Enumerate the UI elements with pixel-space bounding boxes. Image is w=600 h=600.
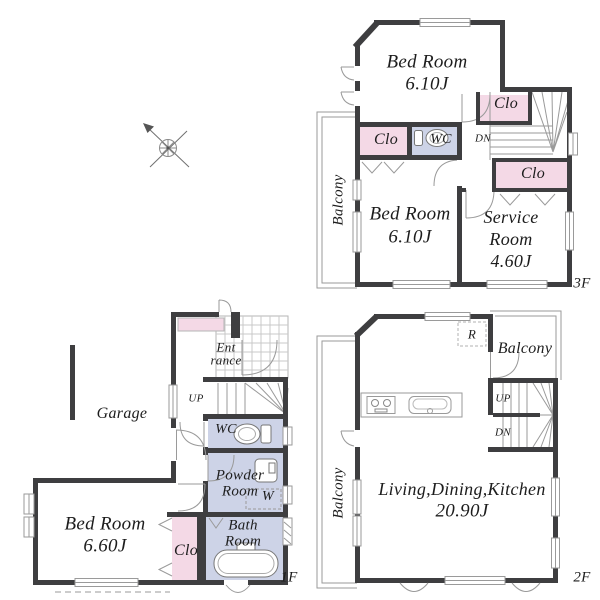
bath-room-line2: Room [225,535,261,550]
balcony-right-label-2f: Balcony [498,341,553,357]
ldk-size-2f: 20.90J [436,502,489,521]
service-room-line2: Room [489,230,532,248]
up-label-2f: UP [495,394,510,405]
balcony-left-label-2f: Balcony [332,467,347,518]
floor-label-2f: 2F [573,571,590,586]
down-label-2f: DN [495,428,511,439]
plan-drawing [0,0,600,600]
closet-upper-label-3f: Clo [494,96,518,112]
bedroom-top-size-3f: 6.10J [405,75,448,94]
ldk-name-2f: Living,Dining,Kitchen [378,480,545,498]
kitchen-counter [361,393,462,417]
bedroom-name-1f: Bed Room [64,515,145,534]
wc-label-3f: WC [430,133,452,147]
balcony-label-3f: Balcony [332,174,347,225]
washer-label-1f: W [262,490,274,504]
bath-room-line1: Bath [228,519,258,534]
powder-room-line2: Room [222,485,258,500]
floor-plan: Bed Room 6.10J Clo WC Clo DN Clo Bed Roo… [0,0,600,600]
bedroom-size-1f: 6.60J [83,537,126,556]
entrance-line2-1f: rance [210,354,241,367]
closet-lower-label-3f: Clo [521,166,545,182]
wc-label-1f: WC [215,423,237,437]
shoe-shelf [178,318,224,331]
service-room-size: 4.60J [491,252,532,270]
closet-mid-label-3f: Clo [374,132,398,148]
garage-label-1f: Garage [97,406,148,422]
closet-label-1f: Clo [174,543,198,559]
service-room-line1: Service [483,208,538,226]
compass-icon [143,123,189,167]
balcony-rail-2f-left [317,336,357,588]
toilet-icon-1f [234,424,271,444]
floor-label-3f: 3F [573,277,590,292]
stairs-icon-1f [218,383,288,414]
bedroom2-size-3f: 6.10J [388,228,431,247]
bedroom2-name-3f: Bed Room [369,205,450,224]
floor-label-1f: 1F [280,571,297,586]
down-label-3f: DN [475,134,491,145]
bedroom-top-name-3f: Bed Room [386,53,467,72]
fridge-label-2f: R [468,328,476,341]
up-label-1f: UP [188,394,203,405]
powder-room-line1: Powder [216,469,264,484]
